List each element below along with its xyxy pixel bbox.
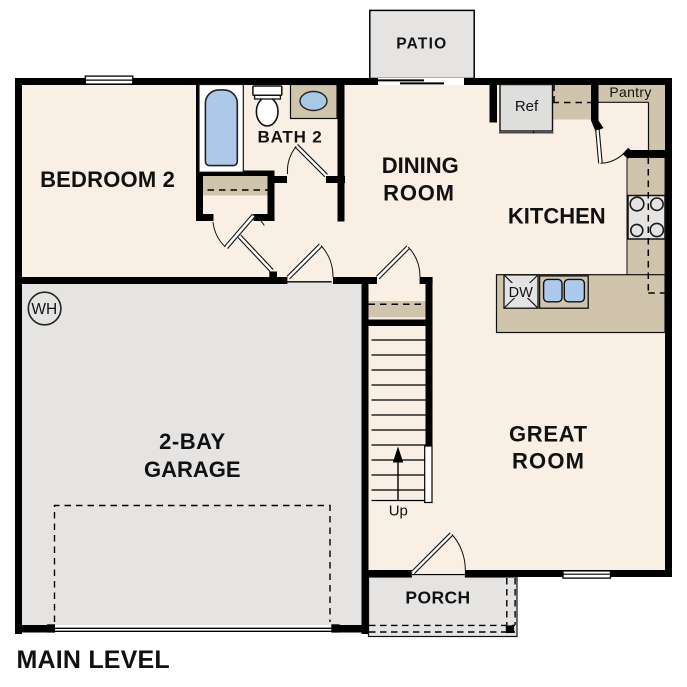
svg-text:2-BAY: 2-BAY (159, 429, 226, 454)
svg-text:ROOM: ROOM (512, 448, 585, 473)
svg-text:Up: Up (389, 503, 408, 520)
svg-text:DINING: DINING (382, 153, 459, 178)
svg-text:BATH 2: BATH 2 (258, 127, 323, 146)
svg-text:GREAT: GREAT (509, 421, 588, 446)
svg-text:PATIO: PATIO (396, 36, 447, 53)
svg-text:PORCH: PORCH (405, 588, 470, 608)
svg-text:DW: DW (509, 285, 533, 301)
svg-text:BEDROOM 2: BEDROOM 2 (40, 167, 175, 192)
svg-text:KITCHEN: KITCHEN (508, 204, 606, 229)
svg-text:ROOM: ROOM (383, 181, 455, 206)
svg-text:MAIN LEVEL: MAIN LEVEL (17, 646, 170, 674)
svg-text:GARAGE: GARAGE (144, 457, 241, 482)
svg-text:Pantry: Pantry (609, 84, 651, 100)
svg-text:Ref: Ref (515, 98, 539, 115)
svg-text:WH: WH (31, 301, 57, 318)
